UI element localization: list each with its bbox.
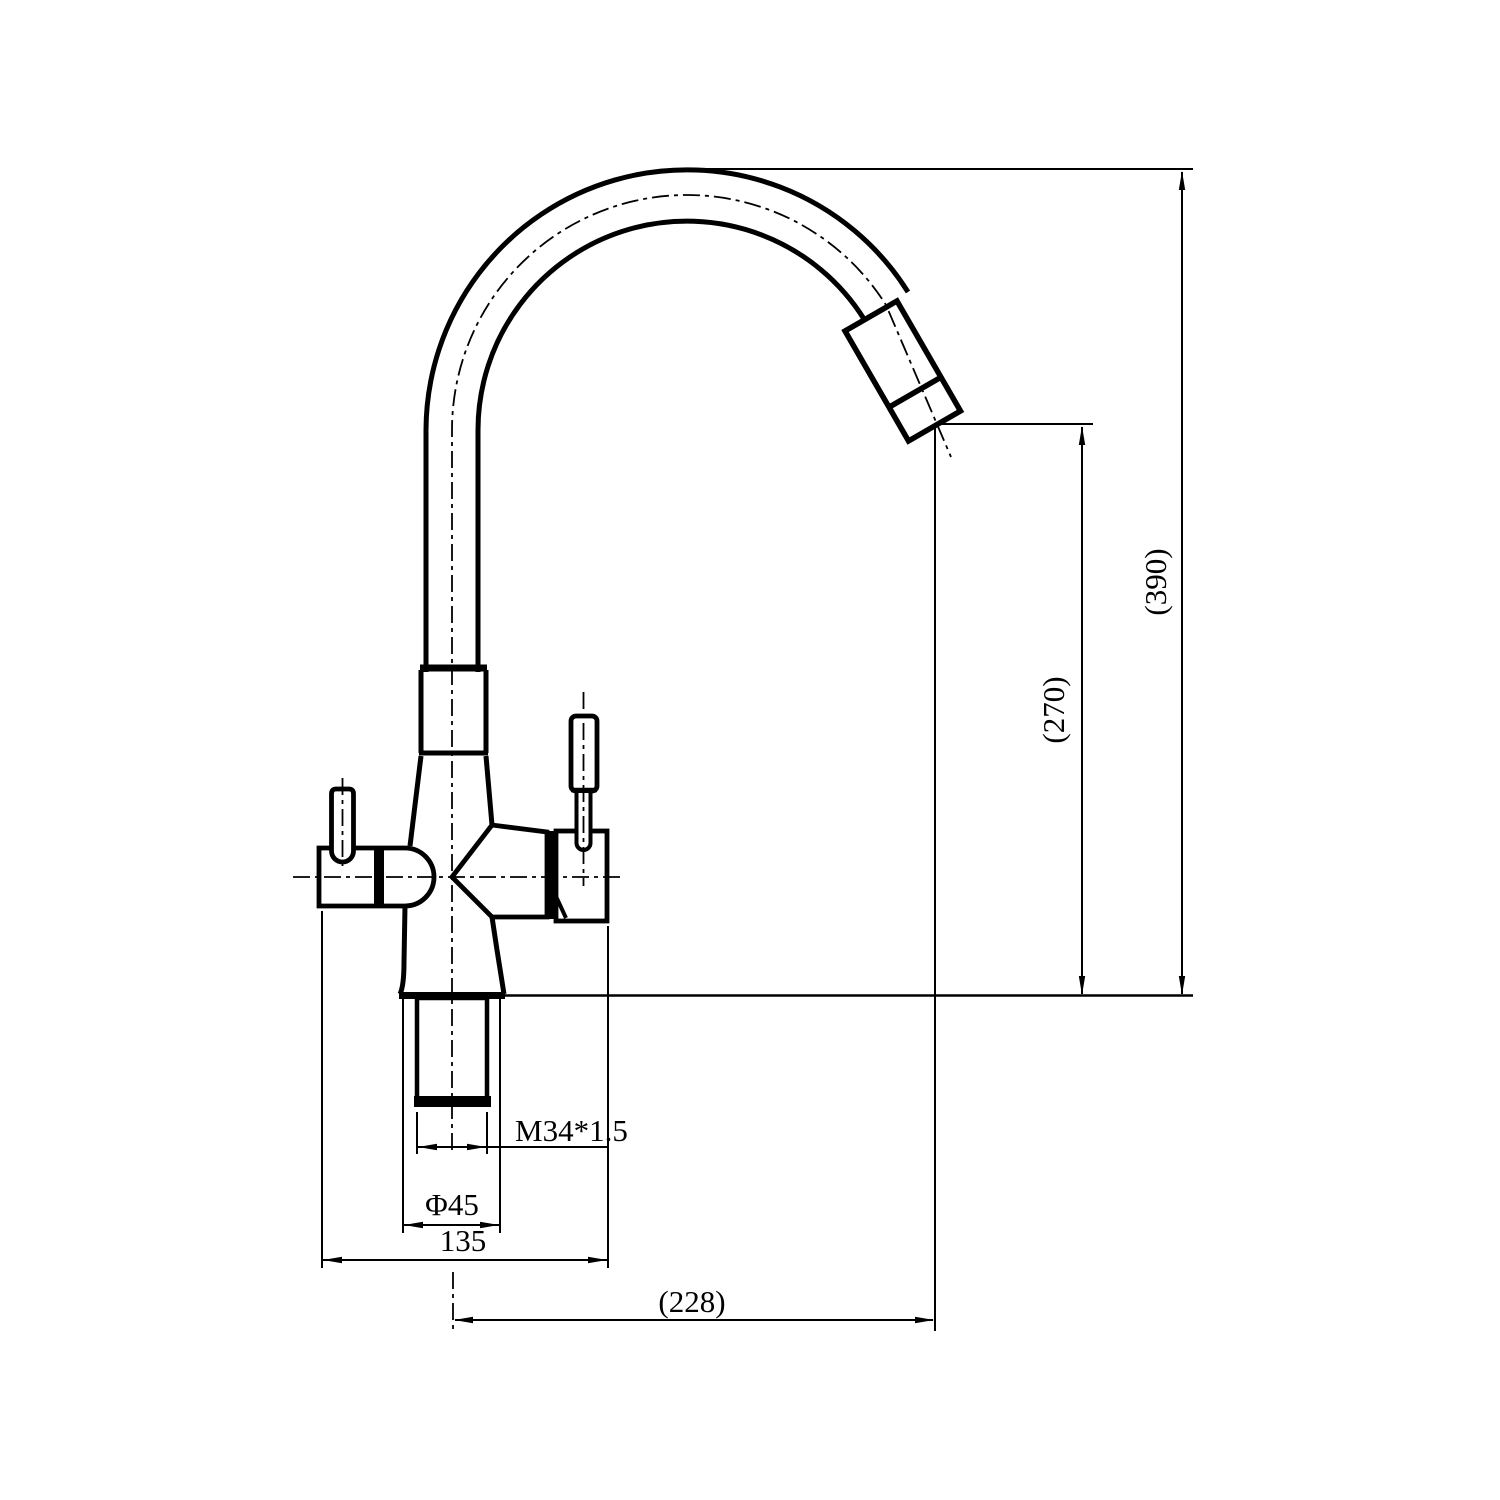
arrow-45-left — [404, 1222, 423, 1228]
nozzle-body — [845, 301, 960, 441]
label-body-width: 135 — [440, 1223, 487, 1258]
nozzle — [845, 301, 960, 441]
collar-joint — [419, 668, 488, 753]
label-mounting-thread: M34*1.5 — [515, 1113, 628, 1148]
column-left-edge-lower — [400, 906, 405, 994]
dimension-labels: (390) (270) (228) 135 Φ45 M34*1.5 — [425, 548, 1173, 1319]
spout-inner-wall — [478, 221, 864, 672]
dimension-arrowheads — [323, 171, 1185, 1323]
arrow-228-right — [915, 1317, 934, 1323]
spout-outer-wall — [426, 170, 908, 672]
spout-tube — [426, 170, 908, 672]
column-right-edge — [486, 756, 492, 825]
label-spout-reach: (228) — [658, 1284, 725, 1319]
faucet-technical-drawing: (390) (270) (228) 135 Φ45 M34*1.5 — [0, 0, 1500, 1500]
arrow-390-top — [1179, 171, 1185, 190]
label-outlet-height: (270) — [1036, 676, 1071, 743]
arrow-270-top — [1079, 426, 1085, 445]
arrow-228-left — [454, 1317, 473, 1323]
arrow-390-bottom — [1179, 976, 1185, 995]
arrow-m34-left — [418, 1144, 437, 1150]
label-base-diameter: Φ45 — [425, 1187, 479, 1222]
dimension-lines — [322, 169, 1193, 1331]
drawing-sheet: (390) (270) (228) 135 Φ45 M34*1.5 — [0, 0, 1500, 1500]
arrow-135-left — [323, 1257, 342, 1263]
arrow-m34-right — [467, 1144, 486, 1150]
label-overall-height: (390) — [1138, 548, 1173, 615]
centerlines — [293, 195, 951, 1333]
column-left-edge — [410, 756, 421, 846]
arrow-270-bottom — [1079, 976, 1085, 995]
arrow-135-right — [588, 1257, 607, 1263]
column-right-edge-lower — [492, 917, 504, 994]
right-valve-cone — [452, 825, 547, 917]
